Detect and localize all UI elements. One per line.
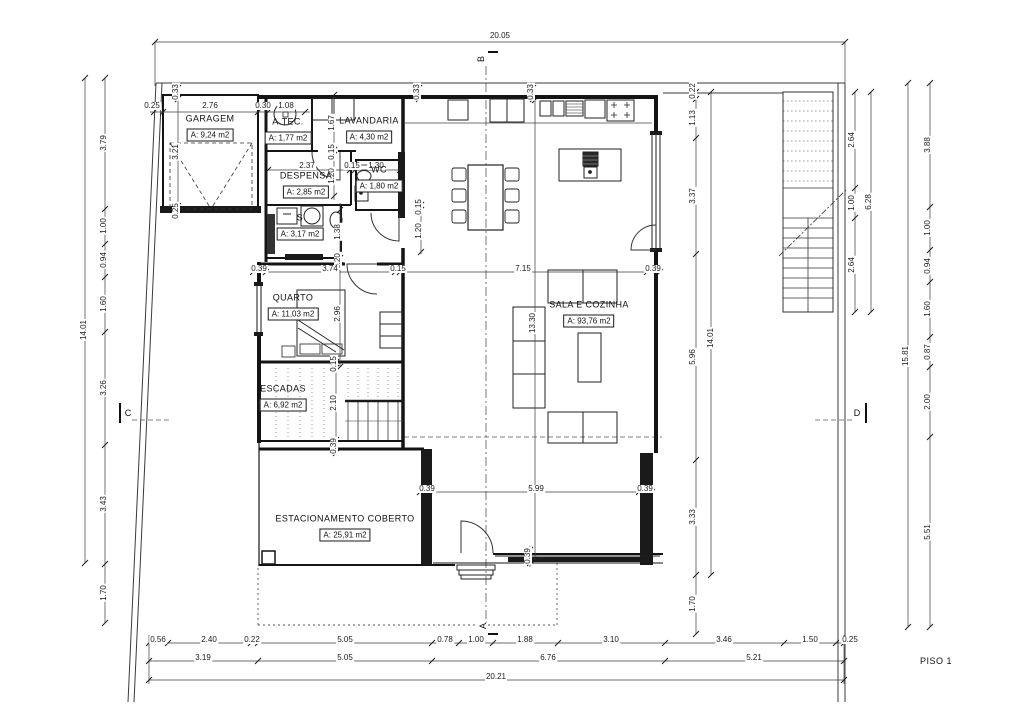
southeast-wall	[640, 453, 653, 565]
dimension-label: 1.00	[848, 194, 856, 212]
dimension-label: 1.67	[328, 114, 336, 132]
dimension-label: 5.05	[336, 654, 354, 662]
dimension-label: 2.64	[848, 256, 856, 274]
garage-ramp-marking	[170, 143, 252, 209]
dimension-label: 2.10	[330, 394, 338, 412]
dimension-label: 2.64	[848, 131, 856, 149]
wall-fills	[160, 131, 662, 565]
dimension-label: 20.21	[485, 673, 507, 681]
dimension-label: 5.96	[689, 348, 697, 366]
dimension-label: 3.74	[321, 265, 339, 273]
dimension-label: 5.51	[924, 523, 932, 541]
room-area: A: 11,03 m2	[268, 308, 319, 321]
dimension-label: 1.38	[334, 223, 342, 241]
wardrobe-icon	[380, 312, 402, 324]
dimension-label: 0.39	[418, 485, 436, 493]
dimension-label: 1.00	[924, 219, 932, 237]
drawing-title: PISO 1	[920, 656, 952, 666]
dimension-label: 6.28	[865, 193, 873, 211]
kitchen-appliances	[448, 99, 634, 122]
dimension-label: 20.05	[489, 32, 511, 40]
room-label-a-tec: A.TEC.A: 1,77 m2	[265, 117, 312, 146]
dimension-label: 0.30	[254, 102, 272, 110]
dimension-label: 0.25	[841, 636, 859, 644]
room-name: ESCADAS	[260, 384, 307, 394]
dimension-label: 5.99	[527, 485, 545, 493]
section-marker-a: A	[478, 623, 488, 629]
stove-icon	[607, 100, 634, 121]
room-label-escadas: ESCADASA: 6,92 m2	[260, 384, 307, 413]
dimension-label: 0.15	[330, 355, 338, 373]
room-label-sala-e-cozinha: SALA E COZINHAA: 93,76 m2	[549, 300, 629, 329]
section-marker-d: D	[854, 408, 861, 418]
room-label-s: SA: 3,17 m2	[277, 213, 324, 242]
dimension-label: 1.20	[415, 222, 423, 240]
dimension-label: 3.10	[602, 636, 620, 644]
room-area: A: 93,76 m2	[563, 315, 614, 328]
dimension-label: 3.33	[689, 508, 697, 526]
dimension-label: 0.15	[328, 143, 336, 161]
section-marker-c: C	[125, 408, 132, 418]
room-name: A.TEC.	[265, 117, 312, 127]
bedroom-door	[347, 264, 377, 294]
shower-wall	[267, 214, 275, 254]
dimension-label: 3.79	[100, 134, 108, 152]
room-name: WC	[356, 165, 403, 175]
dimension-label: 0.39	[250, 265, 268, 273]
dimension-label: 0.39	[524, 547, 532, 565]
dimension-label: 0.22	[243, 636, 261, 644]
room-label-despensa: DESPENSAA: 2,85 m2	[280, 171, 332, 200]
dimension-label: 0.33	[413, 83, 421, 101]
dimension-label: 0.39	[636, 485, 654, 493]
section-marker-b: B	[476, 56, 486, 62]
dimension-label: 2.00	[924, 393, 932, 411]
dimension-label: 1.00	[100, 217, 108, 235]
dimension-label: 1.60	[924, 300, 932, 318]
dimension-label: 7.15	[514, 265, 532, 273]
dimension-label: 1.08	[277, 102, 295, 110]
dimension-label: 3.43	[100, 495, 108, 513]
room-area: A: 25,91 m2	[319, 529, 370, 542]
dimension-label: 2.37	[298, 162, 316, 170]
room-area: A: 2,85 m2	[283, 186, 330, 199]
drainer-icon	[566, 101, 583, 116]
dimension-label: 1.50	[801, 636, 819, 644]
dimension-label: 0.15	[389, 265, 407, 273]
room-name: ESTACIONAMENTO COBERTO	[275, 514, 414, 524]
dimension-label: 3.46	[715, 636, 733, 644]
entry-steps	[457, 565, 495, 579]
dimension-label: 3.19	[194, 654, 212, 662]
wc-door	[371, 213, 399, 241]
dimension-label: 3.37	[689, 187, 697, 205]
room-area: A: 9,24 m2	[187, 129, 234, 142]
dimension-label: 0.94	[924, 257, 932, 275]
exterior-stairs-icon	[779, 92, 846, 312]
dimension-label: 0.87	[924, 343, 932, 361]
dimension-label: 0.15	[415, 198, 423, 216]
door-arcs	[312, 152, 656, 553]
dimension-label: 0.39	[330, 437, 338, 455]
room-label-wc: WCA: 1,80 m2	[356, 165, 403, 194]
dimension-label: 0.78	[436, 636, 454, 644]
room-name: QUARTO	[268, 293, 319, 303]
dimension-label: 0.33	[527, 83, 535, 101]
dimension-label: 0.25	[143, 102, 161, 110]
bathroom-threshold	[285, 254, 323, 260]
fridge-icon	[448, 100, 468, 120]
dimension-label: 0.56	[149, 636, 167, 644]
room-area: A: 3,17 m2	[277, 228, 324, 241]
dimension-label: 1.88	[516, 636, 534, 644]
room-name: DESPENSA	[280, 171, 332, 181]
room-name: SALA E COZINHA	[549, 300, 629, 310]
dimension-label: 1.70	[689, 595, 697, 613]
dimension-label: 2.96	[334, 305, 342, 323]
room-area: A: 6,92 m2	[260, 399, 307, 412]
room-area: A: 1,77 m2	[265, 132, 312, 145]
dimension-label: 0.94	[100, 251, 108, 269]
room-name: LAVANDARIA	[339, 116, 399, 126]
dimension-label: 1.60	[100, 295, 108, 313]
dimension-label: 2.40	[200, 636, 218, 644]
room-name: GARAGEM	[186, 114, 235, 124]
sofa-icon	[513, 270, 617, 443]
room-name: S	[277, 213, 324, 223]
dimension-label: 1.00	[467, 636, 485, 644]
dimension-label: 3.21	[172, 143, 180, 161]
dimension-label: 3.26	[100, 379, 108, 397]
room-area: A: 1,80 m2	[356, 180, 403, 193]
room-label-estacionamento: ESTACIONAMENTO COBERTOA: 25,91 m2	[275, 514, 414, 543]
kitchen-island	[559, 149, 621, 181]
coffee-table-icon	[578, 333, 601, 382]
dimension-label: 1.13	[689, 109, 697, 127]
dimension-label: 0.25	[172, 202, 180, 220]
dimension-label: 14.01	[707, 327, 715, 349]
dimension-label: 1.70	[100, 584, 108, 602]
parking-side-wall	[421, 449, 432, 565]
sink-icon	[540, 101, 551, 116]
room-label-garagem: GARAGEMA: 9,24 m2	[186, 114, 235, 143]
room-area: A: 4,30 m2	[346, 131, 393, 144]
dimension-label: 5.21	[745, 654, 763, 662]
dimension-label: 5.05	[336, 636, 354, 644]
dimension-label: 2.76	[201, 102, 219, 110]
dimension-label: 13.30	[529, 312, 537, 334]
dining-table-icon	[452, 165, 519, 230]
entry-door	[461, 521, 493, 553]
dimension-label: 0.22	[689, 82, 697, 100]
dimension-label: 14.01	[80, 319, 88, 341]
dimension-label: 3.88	[924, 136, 932, 154]
nightstand-icon	[282, 346, 295, 357]
property-boundary	[128, 83, 845, 702]
dimension-label: 0.33	[172, 83, 180, 101]
dimension-label: 15.81	[902, 345, 910, 367]
dimension-label: 6.76	[539, 654, 557, 662]
room-label-quarto: QUARTOA: 11,03 m2	[268, 293, 319, 322]
floor-plan-page: 20.0514.013.791.000.941.603.263.431.700.…	[0, 0, 1010, 720]
dimension-label: 0.39	[644, 265, 662, 273]
room-label-lavandaria: LAVANDARIAA: 4,30 m2	[339, 116, 399, 145]
